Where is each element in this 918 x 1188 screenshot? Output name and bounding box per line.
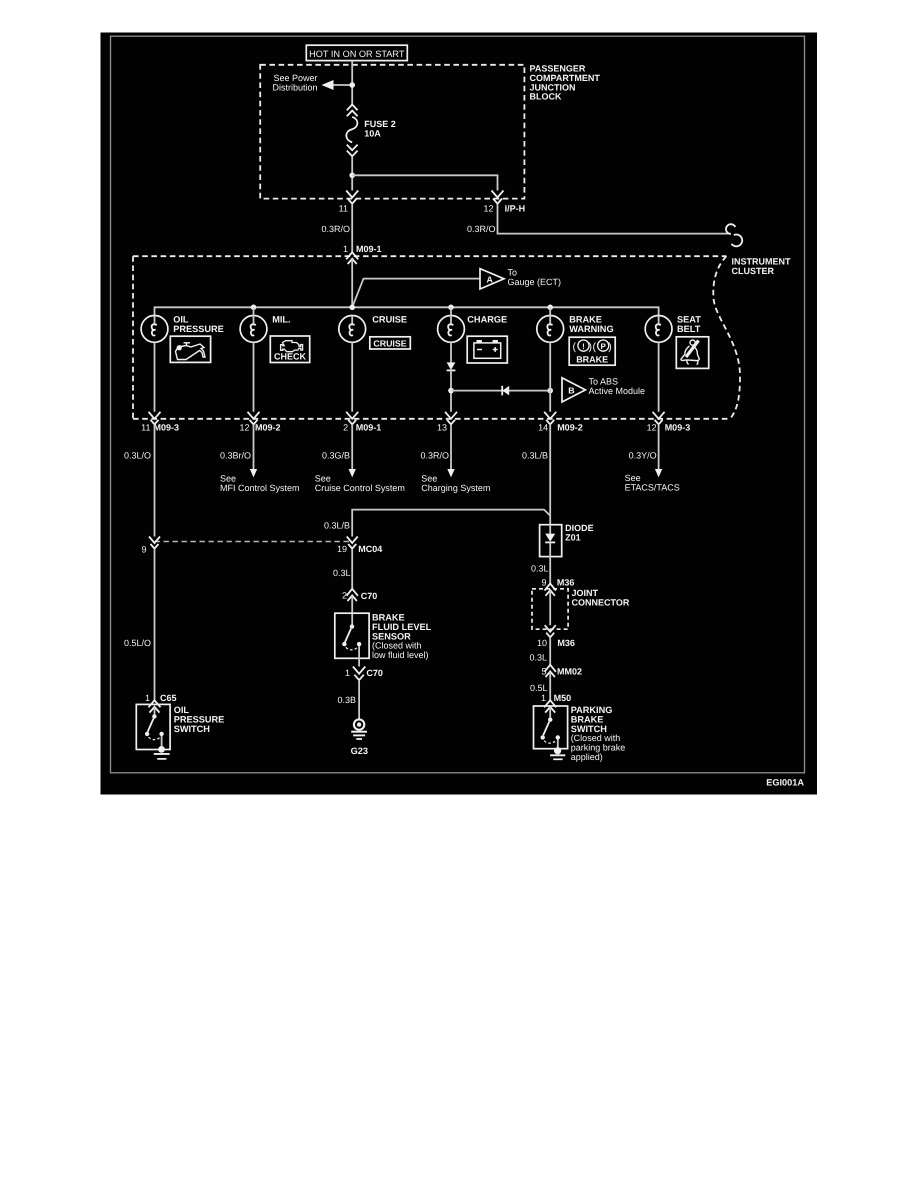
svg-text:11: 11 — [339, 204, 348, 214]
svg-text:BELT: BELT — [677, 324, 701, 334]
svg-text:M09-1: M09-1 — [356, 244, 382, 254]
svg-text:applied): applied) — [571, 752, 603, 762]
svg-text:HOT IN ON OR START: HOT IN ON OR START — [309, 49, 405, 59]
svg-text:WARNING: WARNING — [569, 324, 613, 334]
svg-text:FLUID LEVEL: FLUID LEVEL — [372, 622, 432, 632]
svg-text:12: 12 — [647, 423, 657, 433]
svg-text:MFI Control System: MFI Control System — [220, 483, 300, 493]
svg-text:M36: M36 — [557, 577, 575, 587]
svg-text:B: B — [568, 386, 574, 396]
svg-text:low fluid level): low fluid level) — [372, 650, 429, 660]
svg-text:A: A — [487, 275, 494, 285]
svg-text:M09-2: M09-2 — [255, 423, 281, 433]
svg-text:9: 9 — [141, 544, 146, 554]
svg-text:13: 13 — [437, 423, 447, 433]
svg-text:ETACS/TACS: ETACS/TACS — [625, 483, 680, 493]
svg-text:MC04: MC04 — [358, 544, 382, 554]
svg-text:0.3L/O: 0.3L/O — [124, 451, 151, 461]
svg-text:0.3R/O: 0.3R/O — [467, 224, 496, 234]
svg-text:SWITCH: SWITCH — [174, 724, 211, 734]
svg-text:0.3R/O: 0.3R/O — [321, 224, 350, 234]
svg-text:CONNECTOR: CONNECTOR — [572, 598, 630, 608]
svg-text:1: 1 — [343, 244, 348, 254]
svg-text:0.3R/O: 0.3R/O — [420, 451, 449, 461]
svg-text:M36: M36 — [557, 638, 575, 648]
svg-text:10: 10 — [537, 638, 547, 648]
svg-text:Charging System: Charging System — [421, 483, 490, 493]
svg-text:M09-3: M09-3 — [665, 423, 691, 433]
svg-text:): ) — [589, 341, 593, 353]
svg-text:0.3L/B: 0.3L/B — [522, 451, 548, 461]
svg-text:(: ( — [593, 341, 597, 353]
svg-text:PARKING: PARKING — [571, 705, 613, 715]
svg-text:BLOCK: BLOCK — [530, 92, 562, 102]
svg-text:0.5L: 0.5L — [530, 683, 548, 693]
svg-text:0.3B: 0.3B — [337, 695, 356, 705]
svg-text:M09-1: M09-1 — [356, 423, 382, 433]
svg-text:C70: C70 — [366, 668, 383, 678]
svg-text:C65: C65 — [160, 693, 177, 703]
svg-text:): ) — [608, 341, 612, 353]
svg-text:PRESSURE: PRESSURE — [173, 324, 224, 334]
svg-text:EGI001A: EGI001A — [766, 778, 804, 788]
svg-text:Cruise Control System: Cruise Control System — [315, 483, 405, 493]
svg-text:0.3L: 0.3L — [531, 563, 549, 573]
svg-text:0.5L/O: 0.5L/O — [124, 638, 151, 648]
svg-text:0.3L: 0.3L — [333, 568, 351, 578]
svg-text:2: 2 — [343, 423, 348, 433]
svg-text:14: 14 — [538, 423, 548, 433]
svg-text:9: 9 — [541, 577, 546, 587]
svg-text:Z01: Z01 — [565, 532, 581, 542]
svg-text:M09-2: M09-2 — [557, 423, 583, 433]
svg-text:1: 1 — [541, 693, 546, 703]
svg-text:PRESSURE: PRESSURE — [174, 714, 225, 724]
svg-text:CLUSTER: CLUSTER — [732, 266, 775, 276]
svg-text:I/P-H: I/P-H — [505, 204, 526, 214]
svg-text:2: 2 — [342, 590, 347, 600]
svg-text:0.3G/B: 0.3G/B — [322, 451, 350, 461]
svg-text:M09-3: M09-3 — [154, 423, 180, 433]
svg-text:BRAKE: BRAKE — [576, 354, 608, 364]
svg-text:(: ( — [573, 341, 577, 353]
svg-text:MIL.: MIL. — [272, 315, 290, 325]
svg-text:CRUISE: CRUISE — [373, 339, 406, 349]
svg-text:MM02: MM02 — [557, 666, 582, 676]
svg-text:0.3Br/O: 0.3Br/O — [220, 451, 251, 461]
svg-text:BRAKE: BRAKE — [571, 714, 604, 724]
svg-text:Distribution: Distribution — [272, 83, 317, 93]
svg-text:1: 1 — [345, 668, 350, 678]
svg-text:0.3L/B: 0.3L/B — [324, 520, 350, 530]
svg-text:12: 12 — [239, 423, 249, 433]
svg-text:M50: M50 — [554, 693, 572, 703]
svg-text:5: 5 — [541, 666, 546, 676]
svg-text:0.3Y/O: 0.3Y/O — [629, 451, 657, 461]
svg-text:OIL: OIL — [174, 705, 190, 715]
svg-text:Active Module: Active Module — [589, 386, 646, 396]
svg-text:G23: G23 — [351, 746, 368, 756]
svg-text:1: 1 — [145, 693, 150, 703]
svg-text:P: P — [601, 342, 607, 351]
svg-text:19: 19 — [337, 544, 347, 554]
svg-text:CRUISE: CRUISE — [372, 315, 407, 325]
svg-text:10A: 10A — [364, 128, 381, 138]
svg-text:12: 12 — [483, 204, 493, 214]
svg-text:BRAKE: BRAKE — [372, 612, 405, 622]
svg-text:C70: C70 — [361, 591, 378, 601]
svg-text:Gauge (ECT): Gauge (ECT) — [508, 277, 562, 287]
svg-text:CHECK: CHECK — [274, 352, 307, 362]
svg-text:!: ! — [582, 342, 585, 351]
svg-text:CHARGE: CHARGE — [467, 315, 507, 325]
svg-text:11: 11 — [141, 423, 150, 433]
svg-text:0.3L: 0.3L — [529, 652, 547, 662]
